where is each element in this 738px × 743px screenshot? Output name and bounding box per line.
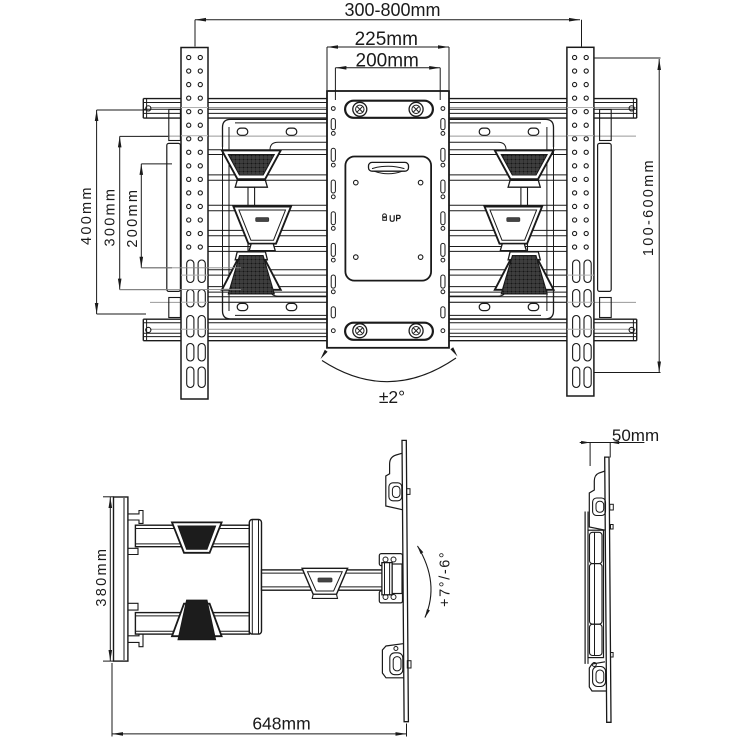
svg-text:100-600mm: 100-600mm — [641, 158, 657, 256]
svg-text:648mm: 648mm — [252, 714, 310, 734]
svg-text:200mm: 200mm — [125, 188, 141, 248]
svg-text:225mm: 225mm — [355, 29, 418, 50]
svg-text:200mm: 200mm — [356, 51, 419, 72]
svg-text:+7°/-6°: +7°/-6° — [438, 551, 454, 607]
svg-text:400mm: 400mm — [79, 185, 95, 245]
svg-text:300-800mm: 300-800mm — [344, 0, 440, 20]
svg-text:300mm: 300mm — [102, 187, 118, 247]
svg-text:380mm: 380mm — [94, 547, 110, 607]
svg-text:±2°: ±2° — [379, 387, 405, 407]
